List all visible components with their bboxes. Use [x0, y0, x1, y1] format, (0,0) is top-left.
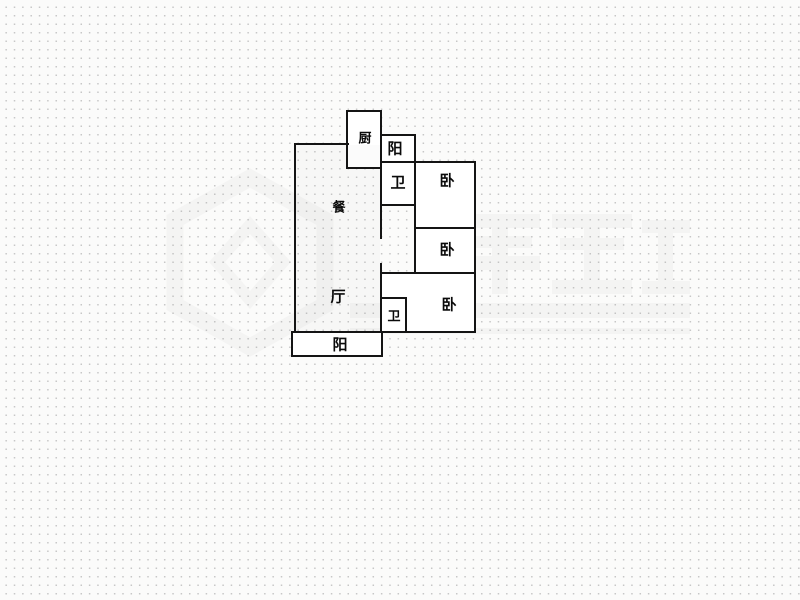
wall-segment: [414, 227, 476, 229]
wall-segment: [291, 331, 293, 357]
wall-segment: [292, 331, 476, 333]
floor-plan: 厨 阳 卫 卧 卧 卧 卫 餐 厅 阳: [0, 0, 800, 600]
wall-segment: [294, 143, 349, 145]
room-label-living: 厅: [330, 290, 345, 305]
room-label-balcony-bottom: 阳: [332, 338, 347, 353]
room-label-balcony-top: 阳: [387, 142, 402, 157]
floor-plan-page: 厨 阳 卫 卧 卧 卧 卫 餐 厅 阳: [0, 0, 800, 600]
wall-segment: [291, 355, 383, 357]
room-label-bathroom-top: 卫: [390, 176, 405, 191]
wall-segment: [380, 204, 416, 206]
wall-segment: [380, 297, 407, 299]
wall-segment: [346, 167, 382, 169]
wall-segment: [405, 297, 407, 333]
room-label-bathroom-bottom: 卫: [387, 311, 400, 324]
room-label-bedroom-bottom: 卧: [441, 298, 456, 313]
wall-segment: [380, 161, 476, 163]
room-label-bedroom-middle: 卧: [439, 243, 454, 258]
wall-segment: [381, 331, 383, 357]
wall-segment: [380, 134, 416, 136]
room-label-kitchen: 厨: [358, 133, 371, 146]
room-label-dining: 餐: [332, 202, 345, 215]
wall-segment: [294, 143, 296, 333]
wall-segment: [380, 110, 382, 239]
wall-segment: [414, 134, 416, 274]
wall-segment: [346, 110, 382, 112]
wall-segment: [346, 110, 348, 169]
room-label-bedroom-top: 卧: [439, 174, 454, 189]
wall-segment: [380, 272, 476, 274]
wall-segment: [474, 161, 476, 333]
wall-segment: [380, 263, 382, 333]
